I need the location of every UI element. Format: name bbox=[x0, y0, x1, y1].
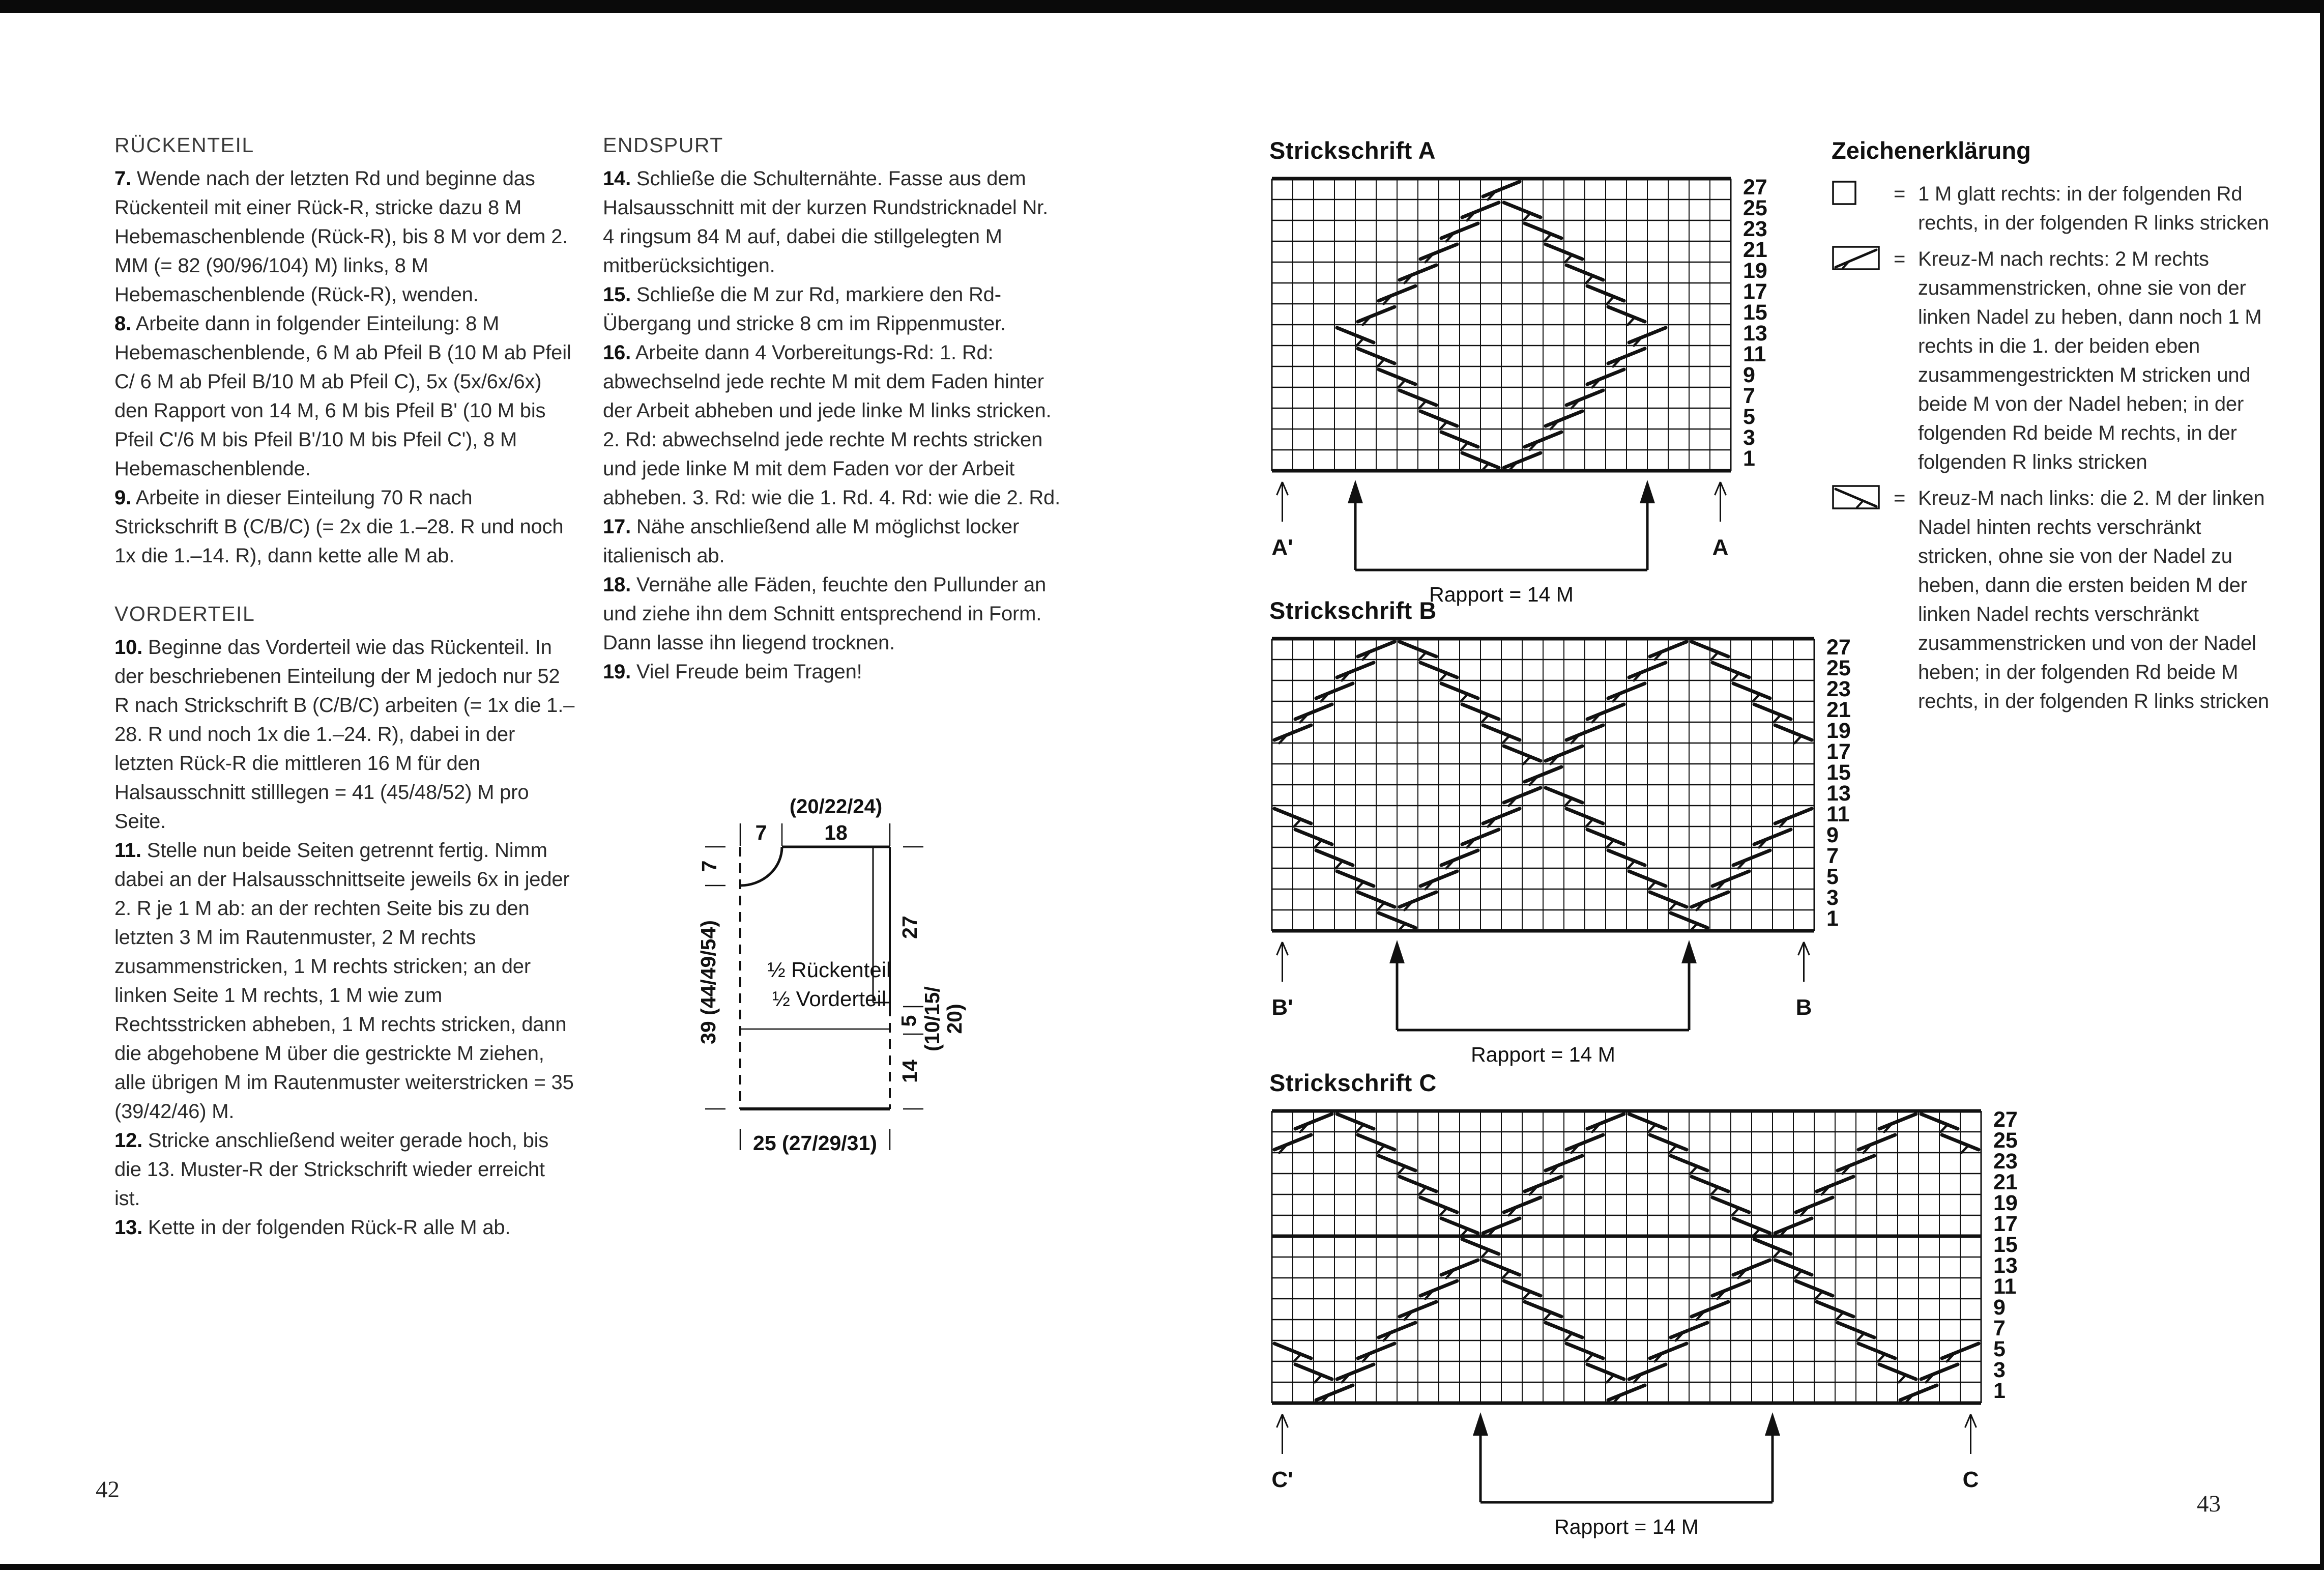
schematic-inner-label-2: ½ Vorderteil bbox=[772, 987, 886, 1011]
row-number: 1 bbox=[1743, 446, 1755, 471]
dim-right-lower: 14 bbox=[898, 1060, 921, 1083]
chart-B: Strickschrift B27252321191715131197531B'… bbox=[1269, 596, 1868, 1077]
boundary-arrow-label: A bbox=[1712, 535, 1729, 560]
cross-right-glyph bbox=[1832, 245, 1880, 271]
instruction-step: 12. Stricke anschließend weiter gerade h… bbox=[114, 1126, 575, 1213]
legend-item: =1 M glatt rechts: in der folgenden Rd r… bbox=[1832, 180, 2279, 238]
rapport-label: Rapport = 14 M bbox=[1554, 1515, 1699, 1538]
legend-title: Zeichenerklärung bbox=[1832, 136, 2279, 164]
step-number: 13. bbox=[114, 1216, 142, 1239]
boundary-arrow-label: B' bbox=[1271, 995, 1293, 1020]
cross-right-icon bbox=[1832, 245, 1894, 274]
instruction-step: 15. Schließe die M zur Rd, markiere den … bbox=[603, 280, 1063, 338]
step-number: 12. bbox=[114, 1129, 142, 1152]
step-text: Nähe anschließend alle M möglichst locke… bbox=[603, 516, 1019, 567]
section-heading: VORDERTEIL bbox=[114, 602, 575, 626]
empty-square-icon bbox=[1832, 180, 1894, 209]
row-number: 1 bbox=[1826, 906, 1839, 931]
legend-items: =1 M glatt rechts: in der folgenden Rd r… bbox=[1832, 180, 2279, 716]
step-number: 11. bbox=[114, 839, 141, 862]
boundary-arrow-label: B bbox=[1796, 995, 1812, 1020]
dim-bottom-width: 25 (27/29/31) bbox=[753, 1131, 877, 1155]
step-number: 17. bbox=[603, 516, 631, 538]
instruction-step: 18. Vernähe alle Fäden, feuchte den Pull… bbox=[603, 570, 1063, 658]
step-number: 14. bbox=[603, 167, 631, 190]
instruction-step: 9. Arbeite in dieser Einteilung 70 R nac… bbox=[114, 483, 575, 570]
dim-top-sizes: (20/22/24) bbox=[790, 795, 882, 818]
instruction-step: 17. Nähe anschließend alle M möglichst l… bbox=[603, 512, 1063, 570]
legend-equals: = bbox=[1894, 180, 1918, 209]
schematic-neckline-arc bbox=[740, 847, 782, 886]
cross-left-glyph bbox=[1832, 484, 1880, 510]
boundary-arrow-label: A' bbox=[1271, 535, 1293, 560]
scan-edge-right bbox=[2320, 0, 2324, 1570]
step-number: 7. bbox=[114, 167, 131, 190]
step-number: 9. bbox=[114, 487, 131, 509]
step-number: 19. bbox=[603, 661, 631, 683]
instruction-step: 7. Wende nach der letzten Rd und beginne… bbox=[114, 164, 575, 309]
instruction-step: 16. Arbeite dann 4 Vorbereitungs-Rd: 1. … bbox=[603, 338, 1063, 512]
step-number: 8. bbox=[114, 312, 131, 335]
chart-title-B: Strickschrift B bbox=[1269, 596, 1868, 624]
legend-item-text: Kreuz-M nach links: die 2. M der linken … bbox=[1918, 484, 2279, 716]
legend-item: =Kreuz-M nach rechts: 2 M rechts zusamme… bbox=[1832, 245, 2279, 477]
empty-square-glyph bbox=[1832, 180, 1858, 206]
legend-equals: = bbox=[1894, 245, 1918, 274]
chart-title-A: Strickschrift A bbox=[1269, 136, 1784, 164]
step-text: Arbeite dann in folgender Einteilung: 8 … bbox=[114, 312, 571, 480]
scan-edge-top bbox=[0, 0, 2324, 13]
magazine-spread: RÜCKENTEIL7. Wende nach der letzten Rd u… bbox=[0, 0, 2324, 1570]
chart-title-C: Strickschrift C bbox=[1269, 1069, 2035, 1097]
step-text: Stricke anschließend weiter gerade hoch,… bbox=[114, 1129, 548, 1210]
column-left: RÜCKENTEIL7. Wende nach der letzten Rd u… bbox=[114, 133, 575, 1242]
dim-left-small: 7 bbox=[698, 861, 721, 872]
section-heading: RÜCKENTEIL bbox=[114, 133, 575, 157]
dim-top-width: 18 bbox=[824, 821, 848, 844]
page-number-right: 43 bbox=[2197, 1490, 2221, 1518]
instruction-step: 13. Kette in der folgenden Rück-R alle M… bbox=[114, 1213, 575, 1242]
step-number: 18. bbox=[603, 574, 631, 596]
row-number: 1 bbox=[1993, 1379, 2006, 1403]
dim-right-mid-paren2: 20) bbox=[943, 1004, 966, 1034]
step-number: 16. bbox=[603, 341, 631, 364]
chart-grid-A: 27252321191715131197531A'ARapport = 14 M bbox=[1269, 175, 1784, 614]
measurement-schematic: (20/22/24) 18 7 7 39 (44/49/54) 27 5 (10… bbox=[677, 779, 1073, 1196]
dim-top-left: 7 bbox=[756, 821, 767, 844]
dim-left-total: 39 (44/49/54) bbox=[696, 920, 720, 1044]
instruction-step: 14. Schließe die Schulternähte. Fasse au… bbox=[603, 164, 1063, 280]
instruction-step: 10. Beginne das Vorderteil wie das Rücke… bbox=[114, 633, 575, 836]
chart-A: Strickschrift A27252321191715131197531A'… bbox=[1269, 136, 1784, 617]
rapport-label: Rapport = 14 M bbox=[1471, 1043, 1615, 1066]
step-text: Arbeite in dieser Einteilung 70 R nach S… bbox=[114, 487, 563, 567]
cross-left-icon bbox=[1832, 484, 1894, 513]
legend: Zeichenerklärung =1 M glatt rechts: in d… bbox=[1832, 136, 2279, 723]
step-text: Beginne das Vorderteil wie das Rückentei… bbox=[114, 636, 574, 833]
step-text: Schließe die Schulternähte. Fasse aus de… bbox=[603, 167, 1048, 277]
chart-C: Strickschrift C27252321191715131197531C'… bbox=[1269, 1069, 2035, 1549]
dim-right-mid-num: 5 bbox=[897, 1015, 920, 1027]
step-text: Vernähe alle Fäden, feuchte den Pullunde… bbox=[603, 574, 1046, 654]
step-text: Kette in der folgenden Rück-R alle M ab. bbox=[142, 1216, 510, 1239]
legend-item: =Kreuz-M nach links: die 2. M der linken… bbox=[1832, 484, 2279, 716]
step-text: Stelle nun beide Seiten getrennt fertig.… bbox=[114, 839, 574, 1123]
scan-edge-bottom bbox=[0, 1564, 2324, 1570]
legend-equals: = bbox=[1894, 484, 1918, 513]
step-text: Schließe die M zur Rd, markiere den Rd-Ü… bbox=[603, 283, 1006, 335]
page-number-left: 42 bbox=[96, 1476, 120, 1503]
column-middle: ENDSPURT14. Schließe die Schulternähte. … bbox=[603, 133, 1063, 687]
step-number: 10. bbox=[114, 636, 142, 659]
step-text: Wende nach der letzten Rd und beginne da… bbox=[114, 167, 568, 306]
dim-right-mid-paren1: (10/15/ bbox=[920, 986, 944, 1051]
chart-grid-B: 27252321191715131197531B'BRapport = 14 M bbox=[1269, 635, 1868, 1074]
step-number: 15. bbox=[603, 283, 631, 306]
step-text: Arbeite dann 4 Vorbereitungs-Rd: 1. Rd: … bbox=[603, 341, 1060, 509]
chart-grid-C: 27252321191715131197531C'CRapport = 14 M bbox=[1269, 1107, 2035, 1547]
boundary-arrow-label: C' bbox=[1271, 1467, 1293, 1492]
boundary-arrow-label: C bbox=[1963, 1467, 1979, 1492]
instruction-step: 19. Viel Freude beim Tragen! bbox=[603, 658, 1063, 687]
step-text: Viel Freude beim Tragen! bbox=[631, 661, 862, 683]
section-heading: ENDSPURT bbox=[603, 133, 1063, 157]
legend-item-text: 1 M glatt rechts: in der folgenden Rd re… bbox=[1918, 180, 2279, 238]
legend-item-text: Kreuz-M nach rechts: 2 M rechts zusammen… bbox=[1918, 245, 2279, 477]
dim-right-upper: 27 bbox=[898, 916, 921, 939]
instruction-step: 8. Arbeite dann in folgender Einteilung:… bbox=[114, 309, 575, 483]
instruction-step: 11. Stelle nun beide Seiten getrennt fer… bbox=[114, 836, 575, 1126]
schematic-inner-label-1: ½ Rückenteil bbox=[768, 958, 891, 982]
